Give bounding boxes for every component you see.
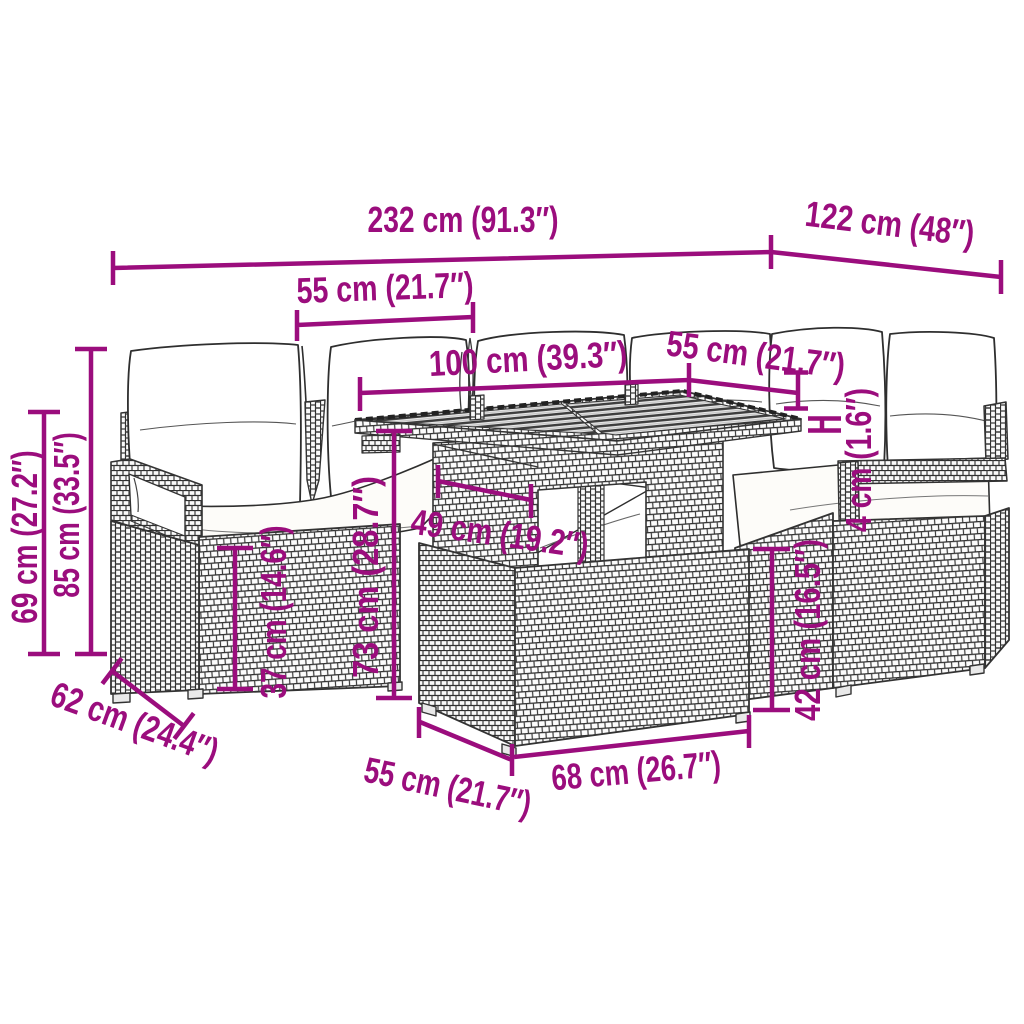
svg-text:42 cm (16.5″): 42 cm (16.5″) (787, 539, 828, 721)
svg-text:69 cm (27.2″): 69 cm (27.2″) (5, 450, 45, 623)
svg-text:73 cm (28.7″): 73 cm (28.7″) (347, 476, 387, 678)
svg-text:37 cm (14.6″): 37 cm (14.6″) (254, 525, 294, 698)
svg-text:55 cm (21.7″): 55 cm (21.7″) (296, 265, 474, 311)
svg-text:85 cm (33.5″): 85 cm (33.5″) (46, 432, 87, 597)
svg-text:232 cm (91.3″): 232 cm (91.3″) (367, 200, 558, 240)
svg-text:4 cm (1.6″): 4 cm (1.6″) (839, 388, 879, 532)
